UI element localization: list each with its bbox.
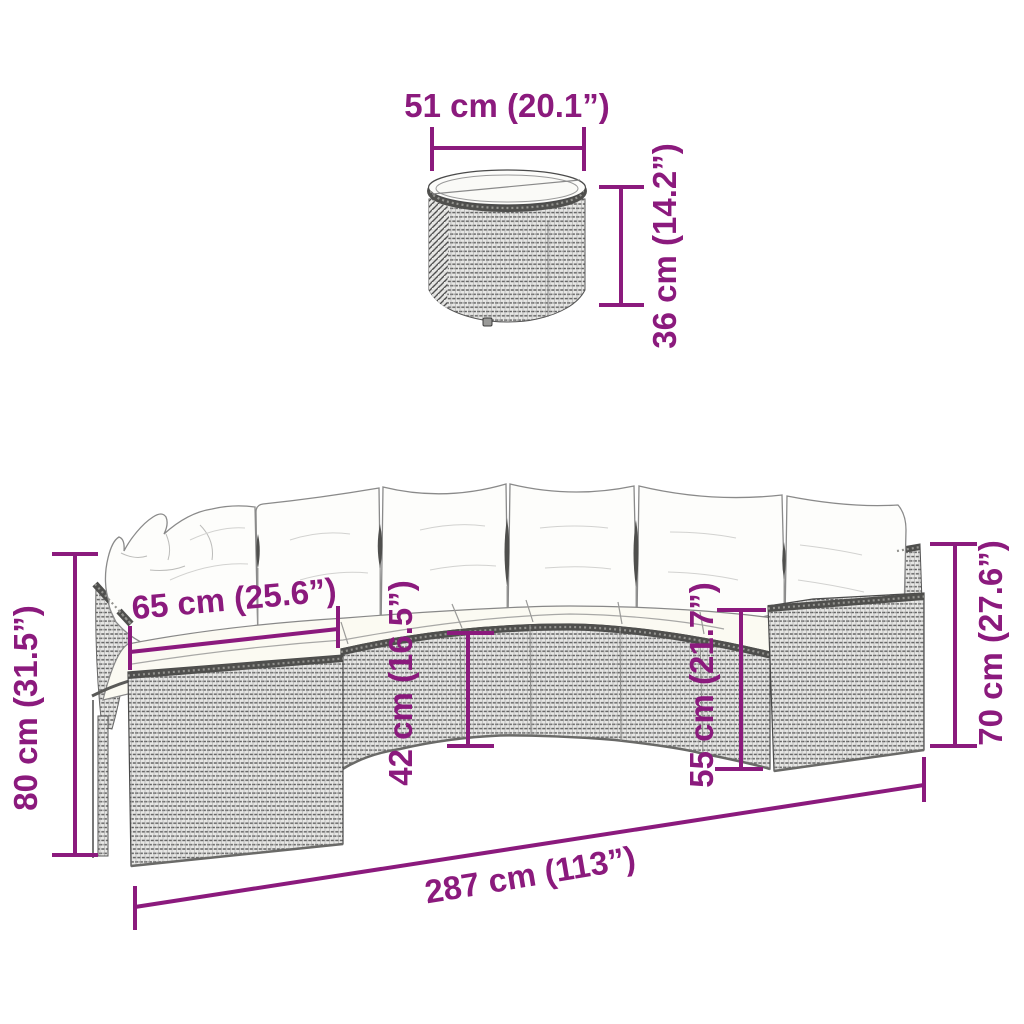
svg-text:36 cm (14.2”): 36 cm (14.2”) bbox=[646, 143, 683, 348]
svg-text:80 cm (31.5”): 80 cm (31.5”) bbox=[7, 605, 44, 810]
svg-text:70 cm (27.6”): 70 cm (27.6”) bbox=[972, 540, 1009, 745]
svg-text:51 cm (20.1”): 51 cm (20.1”) bbox=[404, 87, 609, 124]
svg-text:287 cm (113”): 287 cm (113”) bbox=[422, 839, 638, 911]
svg-text:55 cm (21.7”): 55 cm (21.7”) bbox=[683, 582, 720, 787]
svg-text:42 cm (16.5”): 42 cm (16.5”) bbox=[382, 580, 419, 785]
